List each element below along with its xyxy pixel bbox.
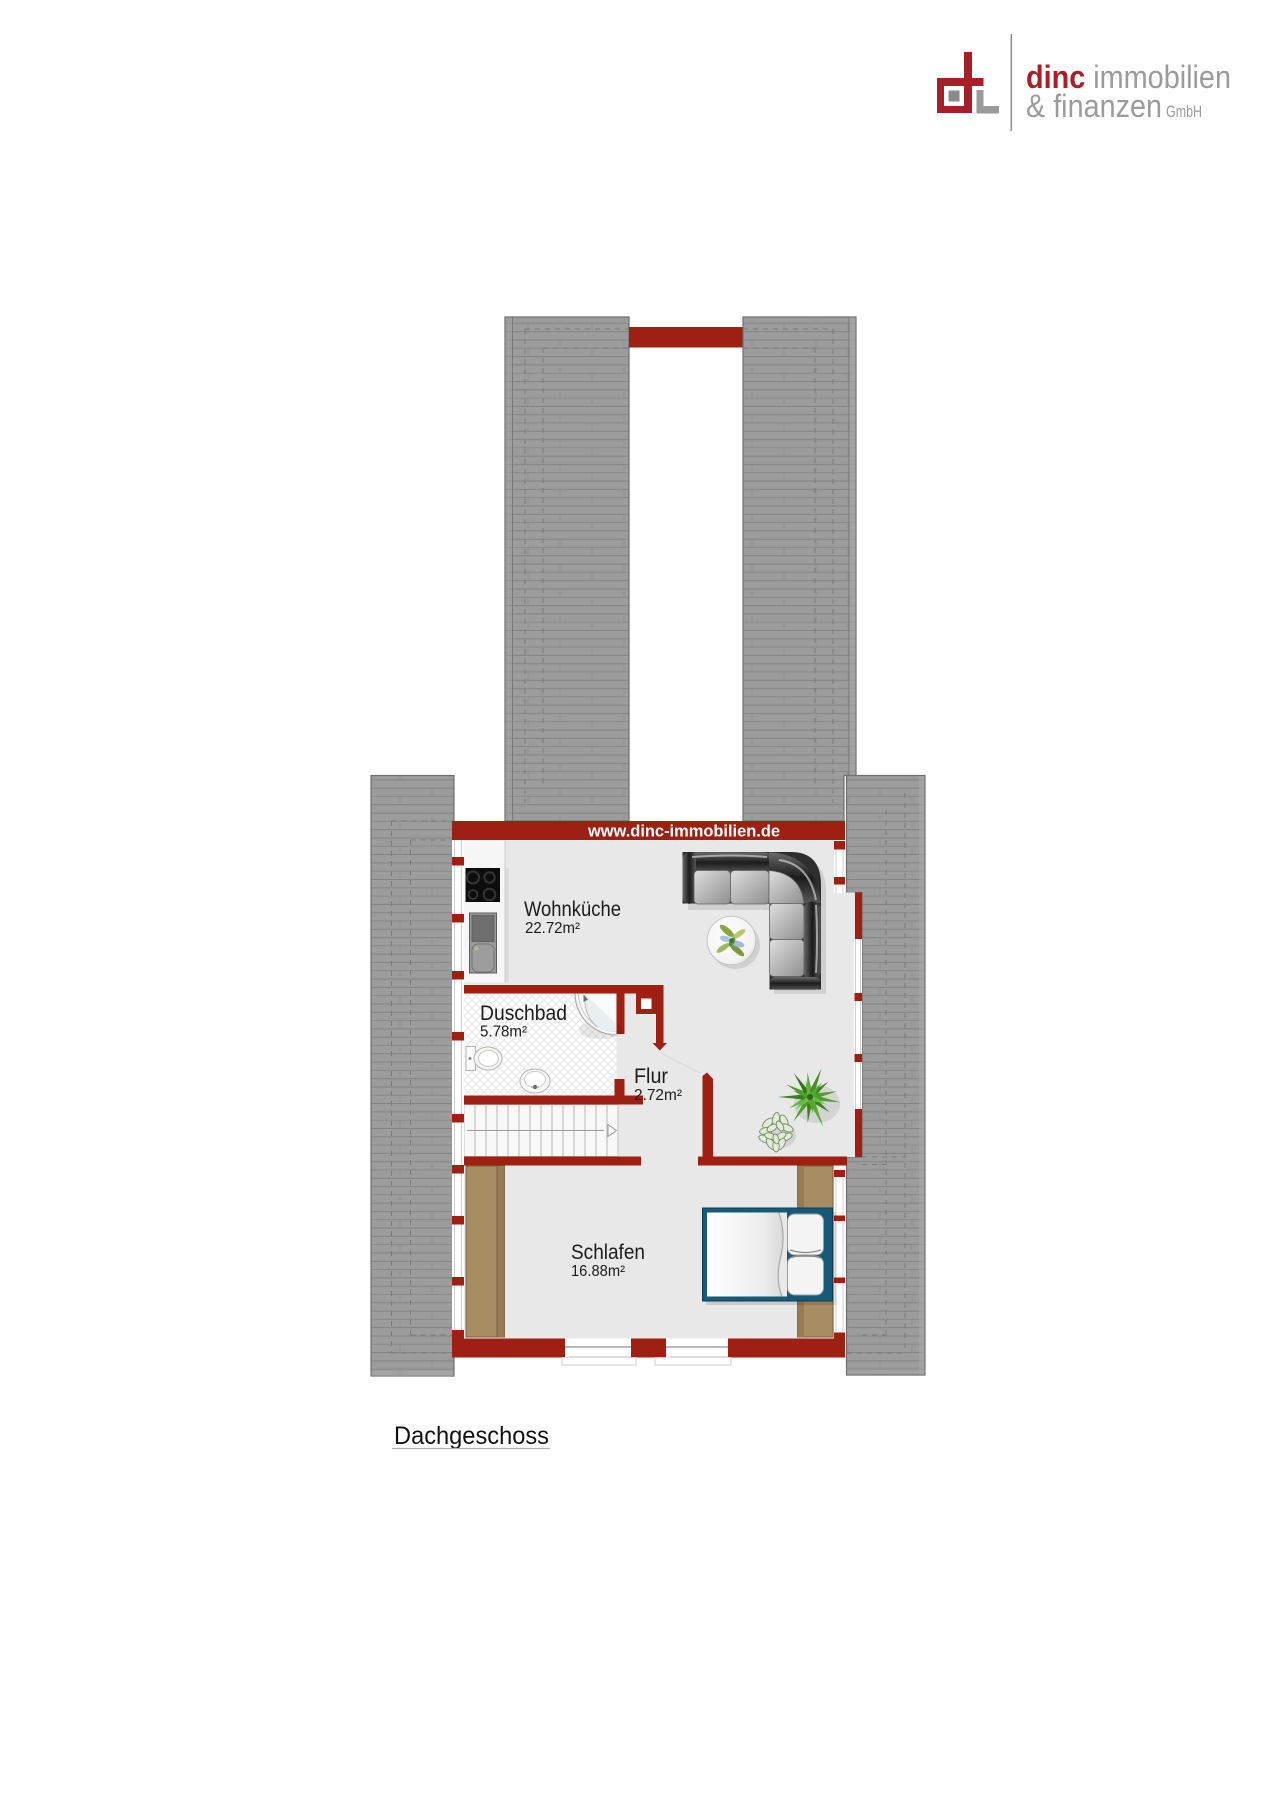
svg-text:16.88m²: 16.88m² — [571, 1263, 625, 1280]
svg-text:& finanzen: & finanzen — [1026, 88, 1162, 124]
svg-text:2.72m²: 2.72m² — [634, 1087, 682, 1104]
svg-text:22.72m²: 22.72m² — [525, 920, 580, 937]
svg-text:Flur: Flur — [634, 1065, 668, 1088]
svg-text:GmbH: GmbH — [1166, 102, 1202, 121]
svg-text:Duschbad: Duschbad — [480, 1002, 567, 1025]
svg-text:www.dinc-immobilien.de: www.dinc-immobilien.de — [587, 823, 780, 841]
svg-text:Wohnküche: Wohnküche — [524, 898, 621, 921]
svg-text:Schlafen: Schlafen — [571, 1241, 645, 1264]
svg-text:5.78m²: 5.78m² — [480, 1024, 527, 1041]
svg-text:Dachgeschoss: Dachgeschoss — [394, 1422, 549, 1450]
